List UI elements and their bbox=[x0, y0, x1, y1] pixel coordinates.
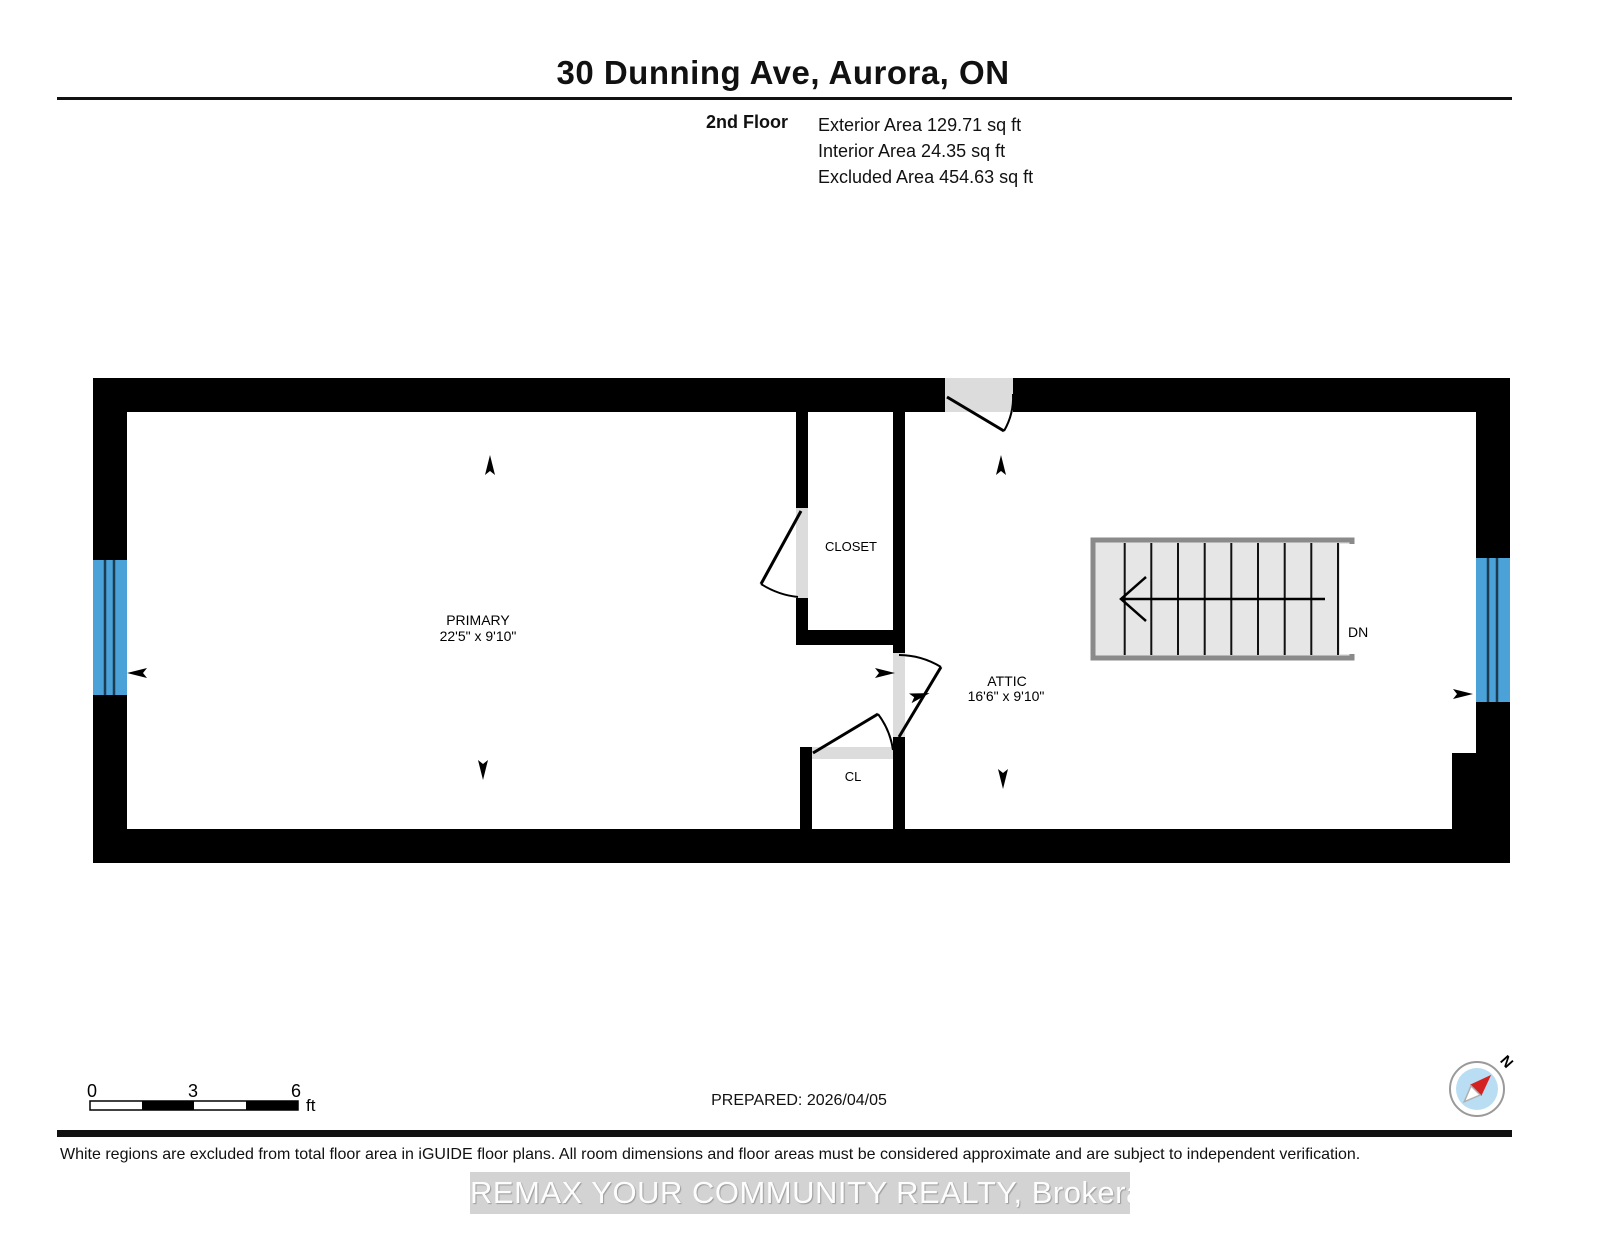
scale-bar: 0 3 6 ft bbox=[87, 1081, 316, 1115]
camera-marker-icon bbox=[485, 455, 495, 475]
wall-segment bbox=[1013, 378, 1510, 412]
wall-segment bbox=[893, 737, 905, 829]
wall-segment bbox=[93, 695, 127, 829]
closet-door-opening bbox=[796, 508, 808, 598]
room-dims-primary: 22'5" x 9'10" bbox=[440, 628, 517, 644]
wall-segment bbox=[1476, 702, 1510, 829]
prepared-date: PREPARED: 2026/04/05 bbox=[649, 1092, 949, 1110]
room-name-cl: CL bbox=[845, 769, 862, 784]
wall-segment bbox=[93, 378, 945, 412]
room-labels: PRIMARY 22'5" x 9'10" ATTIC 16'6" x 9'10… bbox=[440, 539, 1045, 784]
room-name-closet: CLOSET bbox=[825, 539, 877, 554]
staircase: DN bbox=[1093, 540, 1368, 658]
entry-door-opening bbox=[945, 378, 1013, 412]
footer-divider bbox=[57, 1130, 1512, 1137]
camera-marker-icon bbox=[875, 668, 895, 678]
cl-door-arc bbox=[878, 714, 893, 750]
floor-plan-page: 30 Dunning Ave, Aurora, ON 2nd Floor Ext… bbox=[0, 0, 1600, 1237]
camera-marker-icon bbox=[998, 769, 1008, 789]
wall-segment bbox=[893, 412, 905, 653]
wall-segment bbox=[93, 412, 127, 560]
wall-segment bbox=[1452, 753, 1476, 829]
floor-plan-drawing: DN PRIMARY 22'5" x 9'10" ATTIC 16'6" x 9… bbox=[0, 0, 1600, 1237]
wall-segment bbox=[800, 747, 812, 829]
scale-tick-6: 6 bbox=[291, 1081, 301, 1101]
room-name-attic: ATTIC bbox=[987, 673, 1026, 689]
closet-door-arc bbox=[761, 584, 798, 597]
room-dims-attic: 16'6" x 9'10" bbox=[968, 688, 1045, 704]
window-left bbox=[93, 560, 127, 695]
window-right bbox=[1476, 558, 1510, 702]
camera-marker-icon bbox=[1453, 689, 1473, 699]
wall-segment bbox=[796, 630, 905, 645]
camera-marker-icon bbox=[996, 455, 1006, 475]
camera-marker-icon bbox=[478, 760, 488, 780]
attic-door-leaf bbox=[899, 667, 941, 737]
scale-unit: ft bbox=[306, 1096, 316, 1115]
scale-tick-0: 0 bbox=[87, 1081, 97, 1101]
wall-segment bbox=[1476, 412, 1510, 558]
compass-icon: N bbox=[1450, 1052, 1516, 1116]
wall-segment bbox=[796, 412, 808, 508]
cl-door-opening bbox=[812, 747, 893, 759]
attic-door-arc bbox=[899, 655, 941, 667]
scale-tick-3: 3 bbox=[188, 1081, 198, 1101]
brokerage-watermark: REMAX YOUR COMMUNITY REALTY, Brokerage bbox=[470, 1172, 1130, 1214]
disclaimer-text: White regions are excluded from total fl… bbox=[60, 1146, 1360, 1164]
attic-door-opening bbox=[893, 653, 905, 737]
stairs-dn-label: DN bbox=[1348, 624, 1368, 640]
compass-north-label: N bbox=[1496, 1052, 1516, 1071]
wall-segment bbox=[93, 829, 1510, 863]
room-name-primary: PRIMARY bbox=[446, 612, 510, 628]
camera-marker-icon bbox=[127, 668, 147, 678]
closet-door-leaf bbox=[761, 511, 801, 584]
